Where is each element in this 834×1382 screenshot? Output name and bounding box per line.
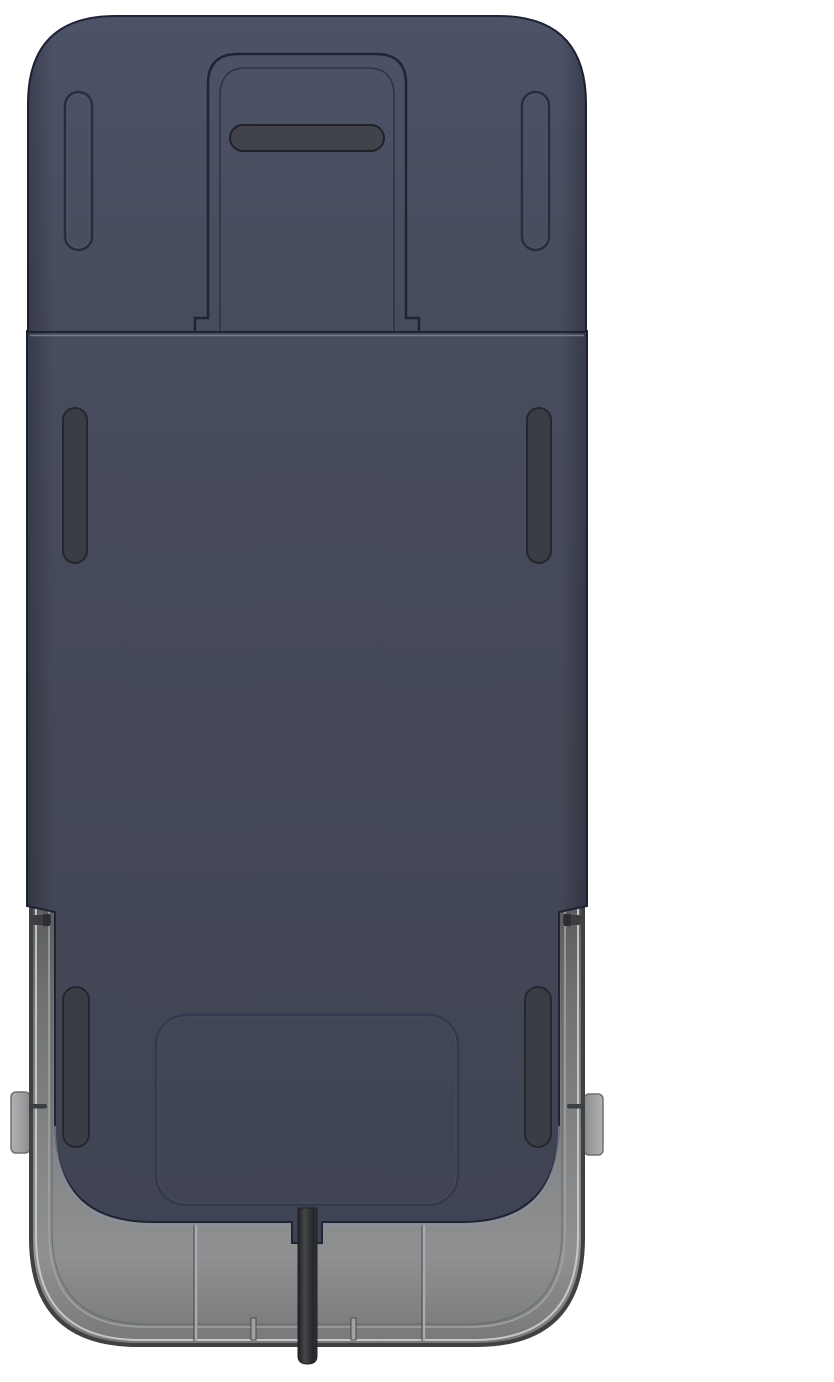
side-tab-right [584, 1094, 603, 1155]
lower-foot-slot-right [525, 987, 551, 1147]
main-deck [27, 331, 587, 1243]
rail-clip-left-pin [43, 914, 50, 926]
tab-notch-left [29, 1104, 47, 1109]
top-cap [28, 16, 586, 332]
tray-tick-right [351, 1318, 356, 1340]
tray-tick-left [251, 1318, 256, 1340]
deck-edge-shading [27, 331, 587, 1243]
handle-grip-slot [230, 125, 384, 151]
tab-right-body [584, 1094, 603, 1155]
rail-clip-right-pin [564, 914, 571, 926]
side-tab-left [11, 1092, 30, 1153]
mid-foot-slot-left [63, 408, 87, 563]
mid-foot-slot-right [527, 408, 551, 563]
cable-body [298, 1208, 317, 1364]
lower-foot-slot-left [63, 987, 89, 1147]
cap-edge-shading [28, 16, 586, 332]
tab-left-body [11, 1092, 30, 1153]
power-cable [298, 1208, 317, 1364]
tab-notch-right [567, 1104, 585, 1109]
product-render-svg [0, 0, 834, 1382]
render-canvas [0, 0, 834, 1382]
